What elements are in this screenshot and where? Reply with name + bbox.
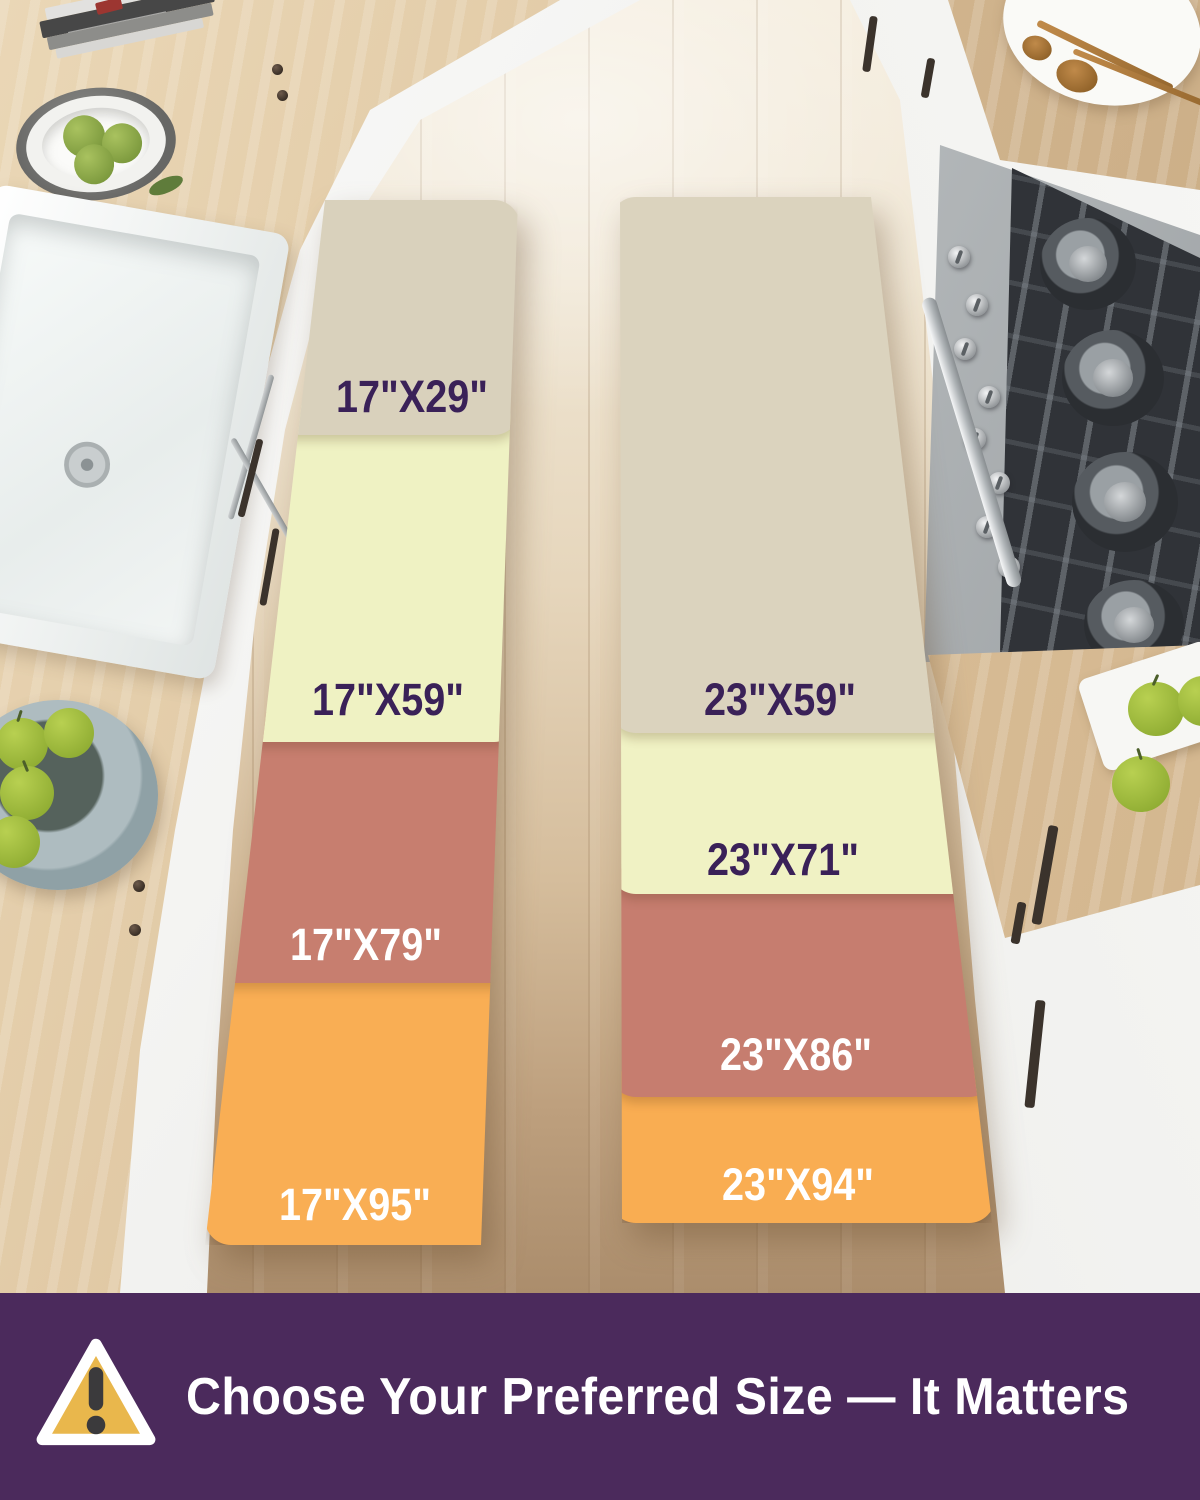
cabinet-knob bbox=[129, 924, 141, 936]
mat-size-label-17x59: 17"X59" bbox=[312, 674, 464, 726]
warning-triangle-icon bbox=[34, 1333, 158, 1455]
mat-size-label-17x95: 17"X95" bbox=[279, 1179, 431, 1231]
mat-size-label-23x71: 23"X71" bbox=[707, 834, 859, 886]
apple bbox=[1128, 682, 1184, 736]
cabinet-knob bbox=[133, 880, 145, 892]
burner bbox=[1062, 330, 1164, 426]
product-infographic: 17"X29" 17"X59" 17"X79" 17"X95" 23"X59" … bbox=[0, 0, 1200, 1500]
burner-cap bbox=[1114, 607, 1154, 643]
info-banner: Choose Your Preferred Size — It Matters bbox=[0, 1293, 1200, 1500]
burner bbox=[1072, 452, 1178, 552]
apple bbox=[1112, 756, 1170, 812]
banner-text: Choose Your Preferred Size — It Matters bbox=[186, 1367, 1129, 1427]
mat-size-label-17x29: 17"X29" bbox=[336, 371, 488, 423]
burner-cap bbox=[1069, 246, 1107, 283]
exclamation-dot bbox=[87, 1416, 106, 1435]
cabinet-knob bbox=[277, 90, 288, 101]
kitchen-scene: 17"X29" 17"X59" 17"X79" 17"X95" 23"X59" … bbox=[0, 0, 1200, 1293]
cabinet-knob bbox=[272, 64, 283, 75]
mat-size-label-23x59: 23"X59" bbox=[704, 674, 856, 726]
burner-cap bbox=[1093, 359, 1134, 397]
burner-cap bbox=[1104, 482, 1146, 522]
exclamation-bar bbox=[89, 1367, 103, 1410]
apple bbox=[0, 766, 54, 820]
mat-size-label-17x79: 17"X79" bbox=[290, 919, 442, 971]
fruit-bowl bbox=[0, 700, 158, 890]
mat-segment-23x59 bbox=[610, 197, 995, 733]
mat-size-label-23x86: 23"X86" bbox=[720, 1029, 872, 1081]
mat-size-label-23x94: 23"X94" bbox=[722, 1159, 874, 1211]
burner bbox=[1040, 218, 1136, 310]
apple bbox=[44, 708, 94, 758]
